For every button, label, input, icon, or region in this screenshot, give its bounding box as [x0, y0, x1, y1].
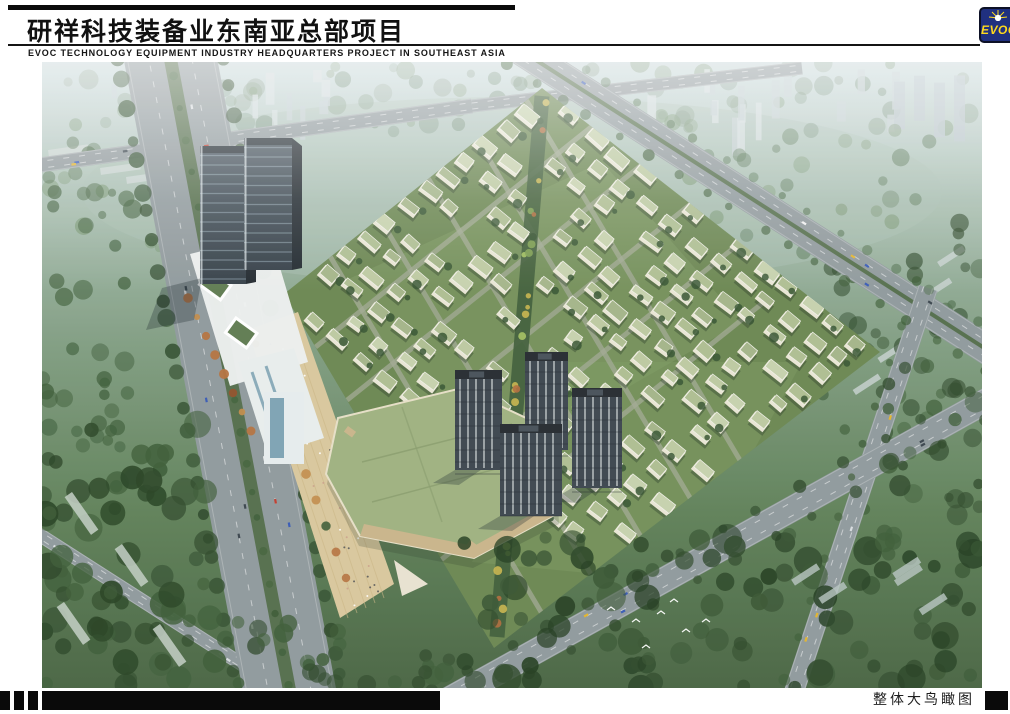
aerial-rendering-canvas — [42, 62, 982, 688]
evoc-logo-text: EVOC — [981, 23, 1010, 37]
aerial-rendering — [42, 62, 982, 688]
footer-barcode-stripe — [14, 691, 24, 710]
footer-barcode-stripe — [28, 691, 38, 710]
footer-end-block — [985, 691, 1008, 710]
footer-black-bar — [42, 691, 440, 710]
page-title: 研祥科技装备业东南亚总部项目 — [27, 12, 405, 48]
evoc-logo: EVOC — [979, 7, 1010, 43]
page-subtitle: EVOC TECHNOLOGY EQUIPMENT INDUSTRY HEADQ… — [28, 48, 506, 58]
footer-barcode-stripe — [0, 691, 10, 710]
sun-icon — [981, 9, 1010, 22]
presentation-board: { "page": {"background": "#ffffff"}, "he… — [0, 0, 1010, 714]
drawing-caption: 整体大鸟瞰图 — [873, 691, 975, 710]
header-divider — [8, 44, 980, 46]
header-accent-bar — [8, 5, 515, 10]
